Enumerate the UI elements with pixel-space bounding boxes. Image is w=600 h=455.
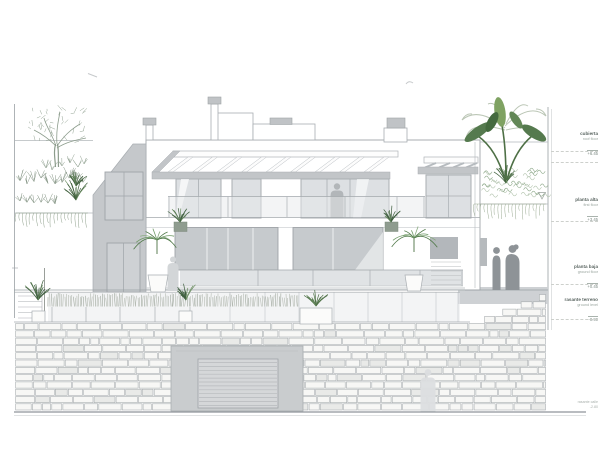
level-dashed-line — [551, 319, 598, 320]
elevation-drawing-canvas: cubierta roof floor +6.45 planta alta fi… — [0, 0, 600, 455]
street-level-note: rasante calle -2.80 — [560, 400, 598, 410]
level-dashed-line — [551, 151, 598, 152]
people-couple-silhouettes — [493, 244, 520, 290]
level-dashed-line — [551, 162, 598, 163]
chimney — [211, 104, 218, 140]
building-main-volume — [95, 97, 487, 291]
tower-volume-shaded — [93, 144, 146, 292]
level-label-ground-floor: planta baja ground floor +0.45 — [544, 264, 598, 294]
level-label-first-floor: planta alta first floor +3.45 — [544, 197, 598, 227]
level-dashed-line — [551, 284, 598, 285]
terrace-balustrade-strip — [14, 292, 470, 322]
garage — [171, 346, 303, 411]
side-window — [480, 238, 487, 266]
sketch-marks — [88, 74, 413, 85]
level-label-terrain: rasante terreno ground level -0.90 — [544, 297, 598, 327]
ground-lines — [14, 412, 586, 416]
level-label-roof: cubierta roof floor +6.45 — [544, 131, 598, 161]
level-subname: roof floor — [544, 137, 598, 142]
chimney — [146, 125, 153, 140]
level-subname: ground floor — [544, 270, 598, 275]
roof-caps — [143, 97, 405, 128]
level-subname: ground level — [544, 303, 598, 308]
level-dashed-line — [551, 221, 598, 222]
elevation-drawing — [0, 0, 600, 455]
level-subname: first floor — [544, 203, 598, 208]
street-level-value: -2.80 — [560, 405, 598, 410]
